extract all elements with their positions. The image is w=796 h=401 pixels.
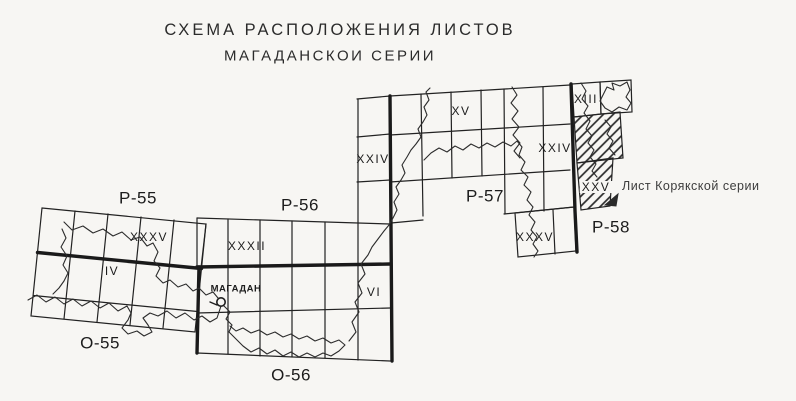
sheet-label-p56-xxiv: XXIV [356, 153, 389, 165]
sheet-label-o56-vi: VI [367, 286, 381, 298]
title-line-2: МАГАДАНСКОИ СЕРИИ [224, 49, 436, 64]
sheet-label-o55-iv: IV [105, 265, 119, 277]
sheet-label-p58-xxv: XXV [580, 181, 613, 193]
sheet-label-p57-xxiv: XXIV [538, 142, 571, 154]
sheet-label-p57-xv: XV [451, 105, 470, 117]
sheet-label-p58-xiii: XIII [574, 93, 598, 105]
series-label-o55: О-55 [80, 335, 120, 352]
series-label-p56: Р-56 [281, 197, 319, 214]
title-line-1: СХЕМА РАСПОЛОЖЕНИЯ ЛИСТОВ [164, 22, 515, 39]
city-label-magadan: МАГАДАН [211, 284, 262, 294]
series-label-p55: Р-55 [119, 190, 157, 207]
map-grid-p56-o56 [197, 96, 390, 361]
koryak-series-note: Лист Корякской серии [622, 180, 759, 193]
series-label-p57: Р-57 [466, 188, 504, 205]
sheet-label-p55-xxxv: XXXV [130, 231, 168, 243]
series-label-o56: О-56 [271, 367, 311, 384]
hatched-sheet-upper [574, 112, 623, 163]
sheet-index-scheme: СХЕМА РАСПОЛОЖЕНИЯ ЛИСТОВ МАГАДАНСКОИ СЕ… [0, 0, 796, 401]
coastline [28, 82, 631, 357]
city-symbol-magadan [210, 298, 225, 306]
sheet-label-p56-xxxii: XXXII [228, 240, 266, 252]
series-boundary-lines [38, 84, 578, 361]
sheet-label-p57-xxxv: XXXV [516, 231, 554, 243]
series-label-p58: Р-58 [592, 219, 630, 236]
